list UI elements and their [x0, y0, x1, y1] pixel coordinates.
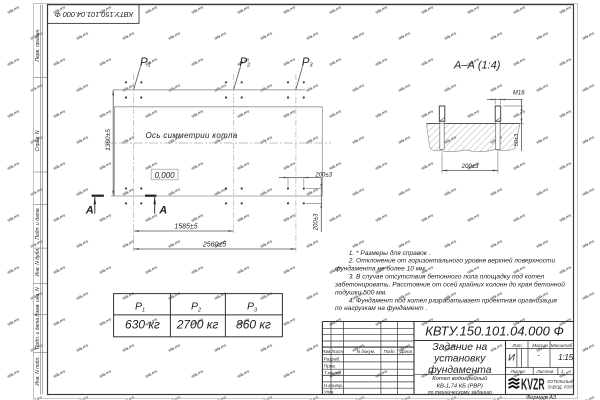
svg-text:А: А: [85, 205, 94, 217]
svg-text:0,000: 0,000: [155, 171, 176, 180]
svg-text:Н.контр.: Н.контр.: [324, 383, 343, 388]
svg-text:Т.контр.: Т.контр.: [324, 371, 343, 376]
svg-text:200±3: 200±3: [314, 172, 332, 178]
svg-text:Масса: Масса: [532, 343, 546, 348]
svg-text:2. Отклонение от горизонтально: 2. Отклонение от горизонтального уровня …: [348, 257, 556, 265]
svg-text:1585±5: 1585±5: [174, 224, 197, 231]
svg-text:Утв.: Утв.: [324, 389, 334, 394]
svg-text:50±3: 50±3: [514, 133, 520, 146]
svg-text:1: 1: [561, 369, 564, 374]
svg-text:Инв. N подл.: Инв. N подл.: [35, 356, 41, 385]
svg-text:Задание на: Задание на: [432, 342, 487, 353]
svg-text:Подп. и дата: Подп. и дата: [35, 208, 41, 240]
svg-text:А–А (1:4): А–А (1:4): [453, 60, 501, 72]
svg-text:Изм.: Изм.: [322, 349, 332, 354]
svg-text:подушки 500 мм.: подушки 500 мм.: [335, 288, 387, 296]
svg-text:А: А: [158, 205, 167, 217]
svg-text:200±3: 200±3: [313, 213, 319, 231]
svg-text:3. В случае отсутствия бетонно: 3. В случае отсутствия бетонного пола пл…: [349, 273, 545, 281]
svg-text:KVZR: KVZR: [521, 376, 545, 393]
svg-text:Инв. N дубл.: Инв. N дубл.: [35, 248, 41, 277]
svg-text:КВ-1,74 КБ (РВР): КВ-1,74 КБ (РВР): [437, 383, 483, 389]
svg-text:Справ. N: Справ. N: [35, 130, 41, 151]
svg-text:Лит.: Лит.: [511, 343, 523, 348]
svg-text:М16: М16: [513, 91, 525, 97]
svg-text:630 кг: 630 кг: [125, 318, 160, 332]
svg-text:КВТУ.150.101.04.000 Ф: КВТУ.150.101.04.000 Ф: [55, 10, 133, 19]
svg-text:200±3: 200±3: [461, 164, 479, 170]
svg-text:1360±5: 1360±5: [105, 129, 112, 151]
svg-text:КОТЕЛЬНЫЙ: КОТЕЛЬНЫЙ: [547, 379, 573, 384]
svg-text:забетонировать. Расстояние от: забетонировать. Расстояние от осей крайн…: [334, 281, 565, 289]
svg-text:Пров.: Пров.: [324, 363, 336, 368]
svg-text:Подп. и дата: Подп. и дата: [35, 318, 41, 350]
svg-text:И: И: [508, 352, 515, 363]
svg-text:Формат А3: Формат А3: [526, 395, 557, 400]
svg-text:Взам. инв. N: Взам. инв. N: [35, 287, 41, 317]
svg-text:2560±5: 2560±5: [202, 242, 226, 249]
svg-text:Масштаб: Масштаб: [551, 343, 573, 348]
svg-text:Разраб.: Разраб.: [324, 357, 341, 362]
svg-text:860 кг: 860 кг: [236, 318, 271, 332]
svg-text:по нагрузкам на фундамент .: по нагрузкам на фундамент .: [335, 304, 427, 312]
svg-text:КВТУ.150.101.04.000 Ф: КВТУ.150.101.04.000 Ф: [425, 323, 564, 338]
svg-text:2700 кг: 2700 кг: [176, 318, 219, 332]
svg-text:Лист: Лист: [330, 349, 343, 354]
svg-text:фундамента не более 10 мм.: фундамента не более 10 мм.: [335, 265, 427, 273]
svg-text:N докум.: N докум.: [357, 349, 376, 354]
svg-text:1:15: 1:15: [558, 352, 574, 362]
svg-text:Ось симметрии котла: Ось симметрии котла: [146, 131, 238, 140]
svg-text:Котел водогрейный: Котел водогрейный: [432, 375, 488, 382]
svg-text:1. * Размеры для справок .: 1. * Размеры для справок .: [349, 249, 431, 257]
svg-text:ЗАВОД. РЭП: ЗАВОД. РЭП: [547, 384, 573, 389]
svg-text:по техническому заданию: по техническому заданию: [428, 390, 492, 396]
svg-text:Листов: Листов: [536, 369, 554, 374]
svg-text:Подп.: Подп.: [384, 349, 396, 354]
svg-text:4. Фундамент под котел разраба: 4. Фундамент под котел разрабатывает про…: [349, 296, 558, 304]
svg-text:Лист: Лист: [510, 369, 523, 374]
svg-text:Дата: Дата: [399, 349, 413, 354]
svg-text:установку: установку: [433, 354, 486, 365]
svg-text:фундамента: фундамента: [428, 364, 492, 376]
svg-text:Перв. примен.: Перв. примен.: [35, 28, 41, 61]
